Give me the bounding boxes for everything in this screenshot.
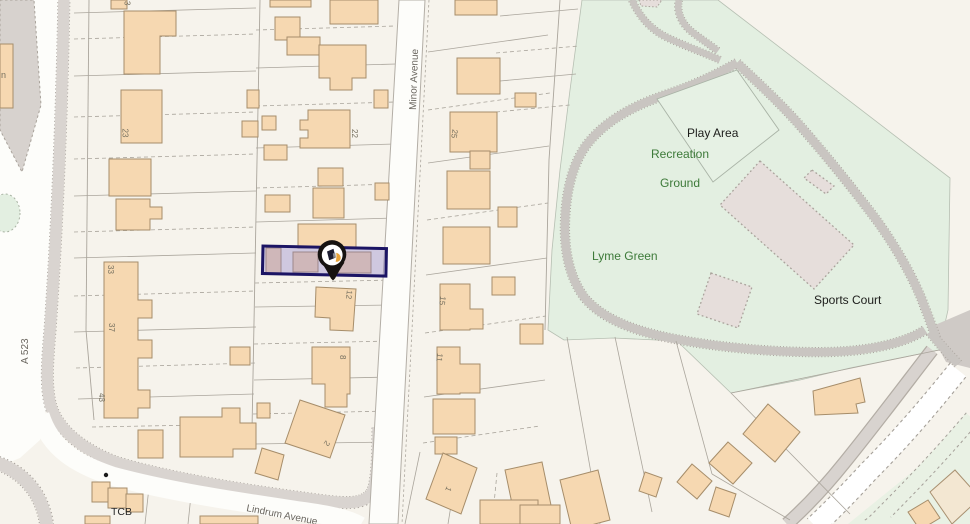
svg-text:Lyme Green: Lyme Green <box>592 249 658 263</box>
svg-text:TCB: TCB <box>111 506 132 518</box>
svg-text:37: 37 <box>107 323 116 332</box>
svg-text:43: 43 <box>97 393 106 402</box>
svg-text:Ground: Ground <box>660 176 700 190</box>
svg-text:Sports Court: Sports Court <box>814 293 882 307</box>
svg-text:23: 23 <box>121 129 130 138</box>
svg-text:n: n <box>1 70 6 80</box>
svg-text:8: 8 <box>338 355 347 360</box>
svg-text:33: 33 <box>106 265 115 274</box>
svg-text:A 523: A 523 <box>20 338 31 364</box>
svg-text:22: 22 <box>350 129 359 138</box>
svg-text:15: 15 <box>437 296 447 307</box>
svg-text:3: 3 <box>123 1 132 6</box>
svg-text:12: 12 <box>344 290 354 300</box>
svg-text:25: 25 <box>449 129 459 140</box>
svg-text:Play Area: Play Area <box>687 126 739 140</box>
svg-text:Recreation: Recreation <box>651 147 709 161</box>
svg-text:Minor Avenue: Minor Avenue <box>408 48 421 110</box>
